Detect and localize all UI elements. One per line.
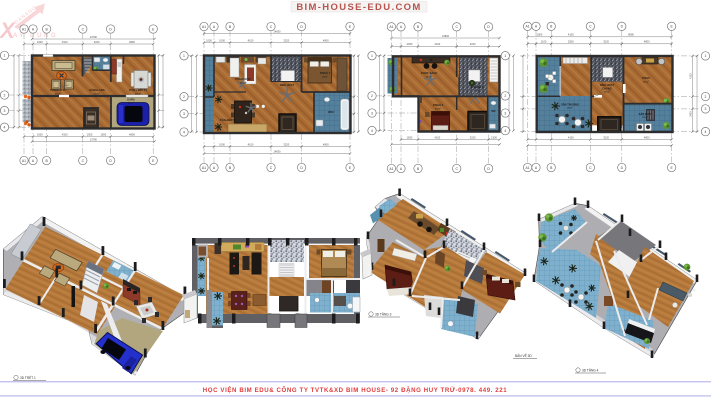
svg-text:3: 3 — [4, 109, 6, 113]
svg-text:WC: WC — [491, 109, 495, 113]
svg-text:1: 1 — [504, 54, 506, 58]
svg-text:A1: A1 — [526, 166, 530, 170]
svg-text:4800: 4800 — [644, 40, 650, 44]
svg-text:2050: 2050 — [407, 42, 413, 46]
svg-text:2: 2 — [371, 94, 373, 98]
svg-text:11 m²: 11 m² — [426, 75, 432, 78]
svg-text:A1: A1 — [389, 25, 393, 29]
svg-text:3220: 3220 — [283, 38, 289, 42]
svg-text:14 m²: 14 m² — [322, 75, 328, 78]
svg-text:14830: 14830 — [273, 149, 281, 153]
svg-text:20 m²: 20 m² — [567, 107, 573, 110]
svg-text:4800: 4800 — [129, 132, 135, 136]
svg-text:4: 4 — [705, 130, 707, 134]
svg-text:21 m²: 21 m² — [240, 81, 246, 84]
svg-text:13 m²: 13 m² — [642, 116, 648, 119]
svg-text:3220: 3220 — [470, 42, 476, 46]
svg-text:4800: 4800 — [644, 135, 650, 139]
svg-text:1000: 1000 — [219, 38, 225, 42]
svg-text:14830: 14830 — [273, 29, 281, 33]
svg-text:1500: 1500 — [491, 135, 497, 139]
svg-text:A1: A1 — [22, 27, 26, 31]
svg-text:1500: 1500 — [100, 132, 106, 136]
svg-text:CHUNG: CHUNG — [602, 86, 612, 90]
svg-text:3: 3 — [371, 111, 373, 115]
svg-text:1000: 1000 — [37, 132, 43, 136]
svg-text:13790: 13790 — [90, 35, 98, 39]
svg-text:21 m²: 21 m² — [128, 102, 134, 105]
svg-text:A1: A1 — [22, 159, 26, 163]
svg-text:3220: 3220 — [470, 135, 476, 139]
svg-text:3: 3 — [705, 107, 707, 111]
svg-text:SINH HOẠT: SINH HOẠT — [600, 83, 615, 87]
svg-text:4800: 4800 — [129, 40, 135, 44]
svg-text:1: 1 — [183, 54, 185, 58]
svg-text:1: 1 — [371, 54, 373, 58]
svg-text:GARA: GARA — [127, 98, 135, 102]
svg-text:A1: A1 — [389, 167, 393, 171]
svg-text:4100: 4100 — [248, 142, 254, 146]
svg-text:2: 2 — [183, 95, 185, 99]
svg-text:16 m²: 16 m² — [55, 92, 61, 95]
svg-text:13 m²: 13 m² — [435, 107, 441, 110]
svg-text:2: 2 — [504, 94, 506, 98]
svg-text:4: 4 — [183, 130, 185, 134]
svg-text:4100: 4100 — [62, 40, 68, 44]
svg-text:WC2: WC2 — [328, 110, 334, 114]
svg-text:13790: 13790 — [90, 137, 98, 141]
svg-text:14830: 14830 — [442, 34, 450, 38]
svg-text:4: 4 — [371, 129, 373, 133]
svg-text:BẢN VẼ 3D: BẢN VẼ 3D — [515, 353, 532, 358]
svg-text:1: 1 — [705, 54, 707, 58]
svg-text:4800: 4800 — [323, 38, 329, 42]
svg-text:4800: 4800 — [323, 142, 329, 146]
svg-text:4100: 4100 — [434, 42, 440, 46]
svg-text:3220: 3220 — [94, 40, 100, 44]
svg-text:3220: 3220 — [603, 40, 609, 44]
svg-text:2500: 2500 — [568, 40, 574, 44]
svg-text:15 m²: 15 m² — [135, 92, 141, 95]
svg-text:12 m²: 12 m² — [94, 92, 100, 95]
svg-text:3220: 3220 — [283, 142, 289, 146]
svg-text:8080: 8080 — [628, 33, 634, 37]
svg-text:1000: 1000 — [537, 33, 543, 37]
svg-text:15 m²: 15 m² — [643, 80, 649, 83]
svg-text:4100: 4100 — [690, 73, 693, 79]
svg-text:P.S.HOẠT: P.S.HOẠT — [471, 85, 483, 89]
svg-text:4: 4 — [4, 126, 6, 130]
svg-text:1350: 1350 — [87, 132, 93, 136]
svg-text:HỌC VIỆN BIM EDU& CÔNG TY TVTK: HỌC VIỆN BIM EDU& CÔNG TY TVTK&XD BIM HO… — [203, 386, 507, 394]
svg-text:4100: 4100 — [568, 135, 574, 139]
svg-text:1050: 1050 — [206, 38, 212, 42]
svg-text:AY DUNG: AY DUNG — [13, 33, 58, 39]
svg-text:1100: 1100 — [541, 40, 547, 44]
svg-text:A1: A1 — [526, 25, 530, 29]
svg-text:3: 3 — [183, 112, 185, 116]
svg-text:3220: 3220 — [603, 135, 609, 139]
svg-text:A1: A1 — [202, 166, 206, 170]
svg-text:4: 4 — [504, 129, 506, 133]
svg-text:SINH HOẠT: SINH HOẠT — [280, 83, 295, 87]
svg-text:3D TRỆT 1: 3D TRỆT 1 — [20, 375, 36, 380]
svg-text:4100: 4100 — [434, 135, 440, 139]
svg-text:4100: 4100 — [568, 33, 574, 37]
svg-text:4100: 4100 — [248, 38, 254, 42]
svg-text:2: 2 — [4, 93, 6, 97]
svg-text:1000: 1000 — [37, 40, 43, 44]
svg-text:16 m²: 16 m² — [474, 89, 480, 92]
svg-text:1650: 1650 — [407, 135, 413, 139]
svg-text:1: 1 — [4, 54, 6, 58]
svg-text:BIM-HOUSE-EDU.COM: BIM-HOUSE-EDU.COM — [296, 2, 421, 13]
svg-text:1000: 1000 — [219, 142, 225, 146]
svg-text:16 m²: 16 m² — [604, 91, 610, 94]
svg-text:2: 2 — [705, 95, 707, 99]
svg-text:3400: 3400 — [690, 111, 693, 117]
svg-text:3: 3 — [504, 111, 506, 115]
svg-text:A1: A1 — [202, 25, 206, 29]
svg-text:4100: 4100 — [62, 132, 68, 136]
svg-text:3D TẦNG 3: 3D TẦNG 3 — [375, 313, 392, 317]
svg-text:3D TẦNG 4: 3D TẦNG 4 — [582, 369, 599, 373]
